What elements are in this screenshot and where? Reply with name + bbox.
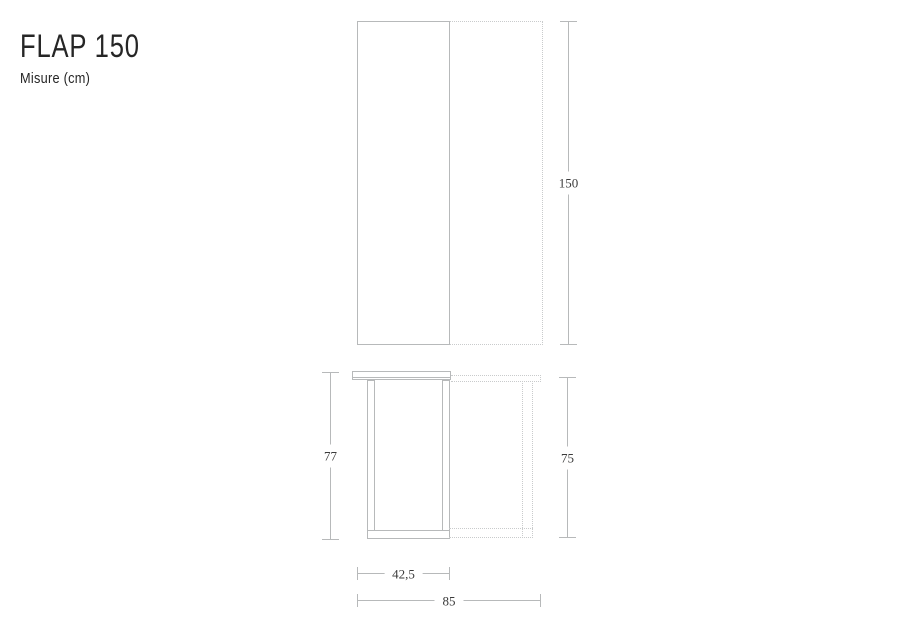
dim-value-150: 150 bbox=[558, 172, 580, 195]
diagram-canvas: FLAP 150 Misure (cm) 150 77 bbox=[0, 0, 900, 634]
right-leg bbox=[442, 380, 450, 539]
dim-value-77: 77 bbox=[323, 445, 338, 468]
panel-closed-outline bbox=[357, 21, 450, 345]
dim-tick-bottom bbox=[559, 537, 576, 538]
dim-front-height: 150 bbox=[560, 21, 577, 345]
dim-width-closed: 42,5 bbox=[357, 566, 450, 581]
stretcher-open-dotted bbox=[449, 528, 533, 538]
dim-tick-bottom bbox=[322, 539, 339, 540]
page-title: FLAP 150 bbox=[20, 28, 140, 65]
dim-value-75: 75 bbox=[560, 446, 575, 469]
leg-open-dotted bbox=[522, 381, 533, 538]
dim-width-open: 85 bbox=[357, 593, 541, 608]
bottom-stretcher bbox=[367, 530, 450, 539]
dim-tick-right bbox=[540, 594, 541, 607]
left-leg bbox=[367, 380, 375, 539]
dim-tick-right bbox=[449, 567, 450, 580]
page-subtitle: Misure (cm) bbox=[20, 70, 90, 87]
tabletop-edge-line bbox=[353, 377, 450, 378]
dim-tick-bottom bbox=[560, 344, 577, 345]
dim-value-85: 85 bbox=[435, 593, 464, 608]
dim-value-42-5: 42,5 bbox=[384, 566, 423, 581]
panel-open-outline bbox=[450, 21, 543, 345]
dim-height-closed: 77 bbox=[322, 372, 339, 540]
tabletop bbox=[352, 371, 451, 380]
dim-height-open: 75 bbox=[559, 377, 576, 538]
